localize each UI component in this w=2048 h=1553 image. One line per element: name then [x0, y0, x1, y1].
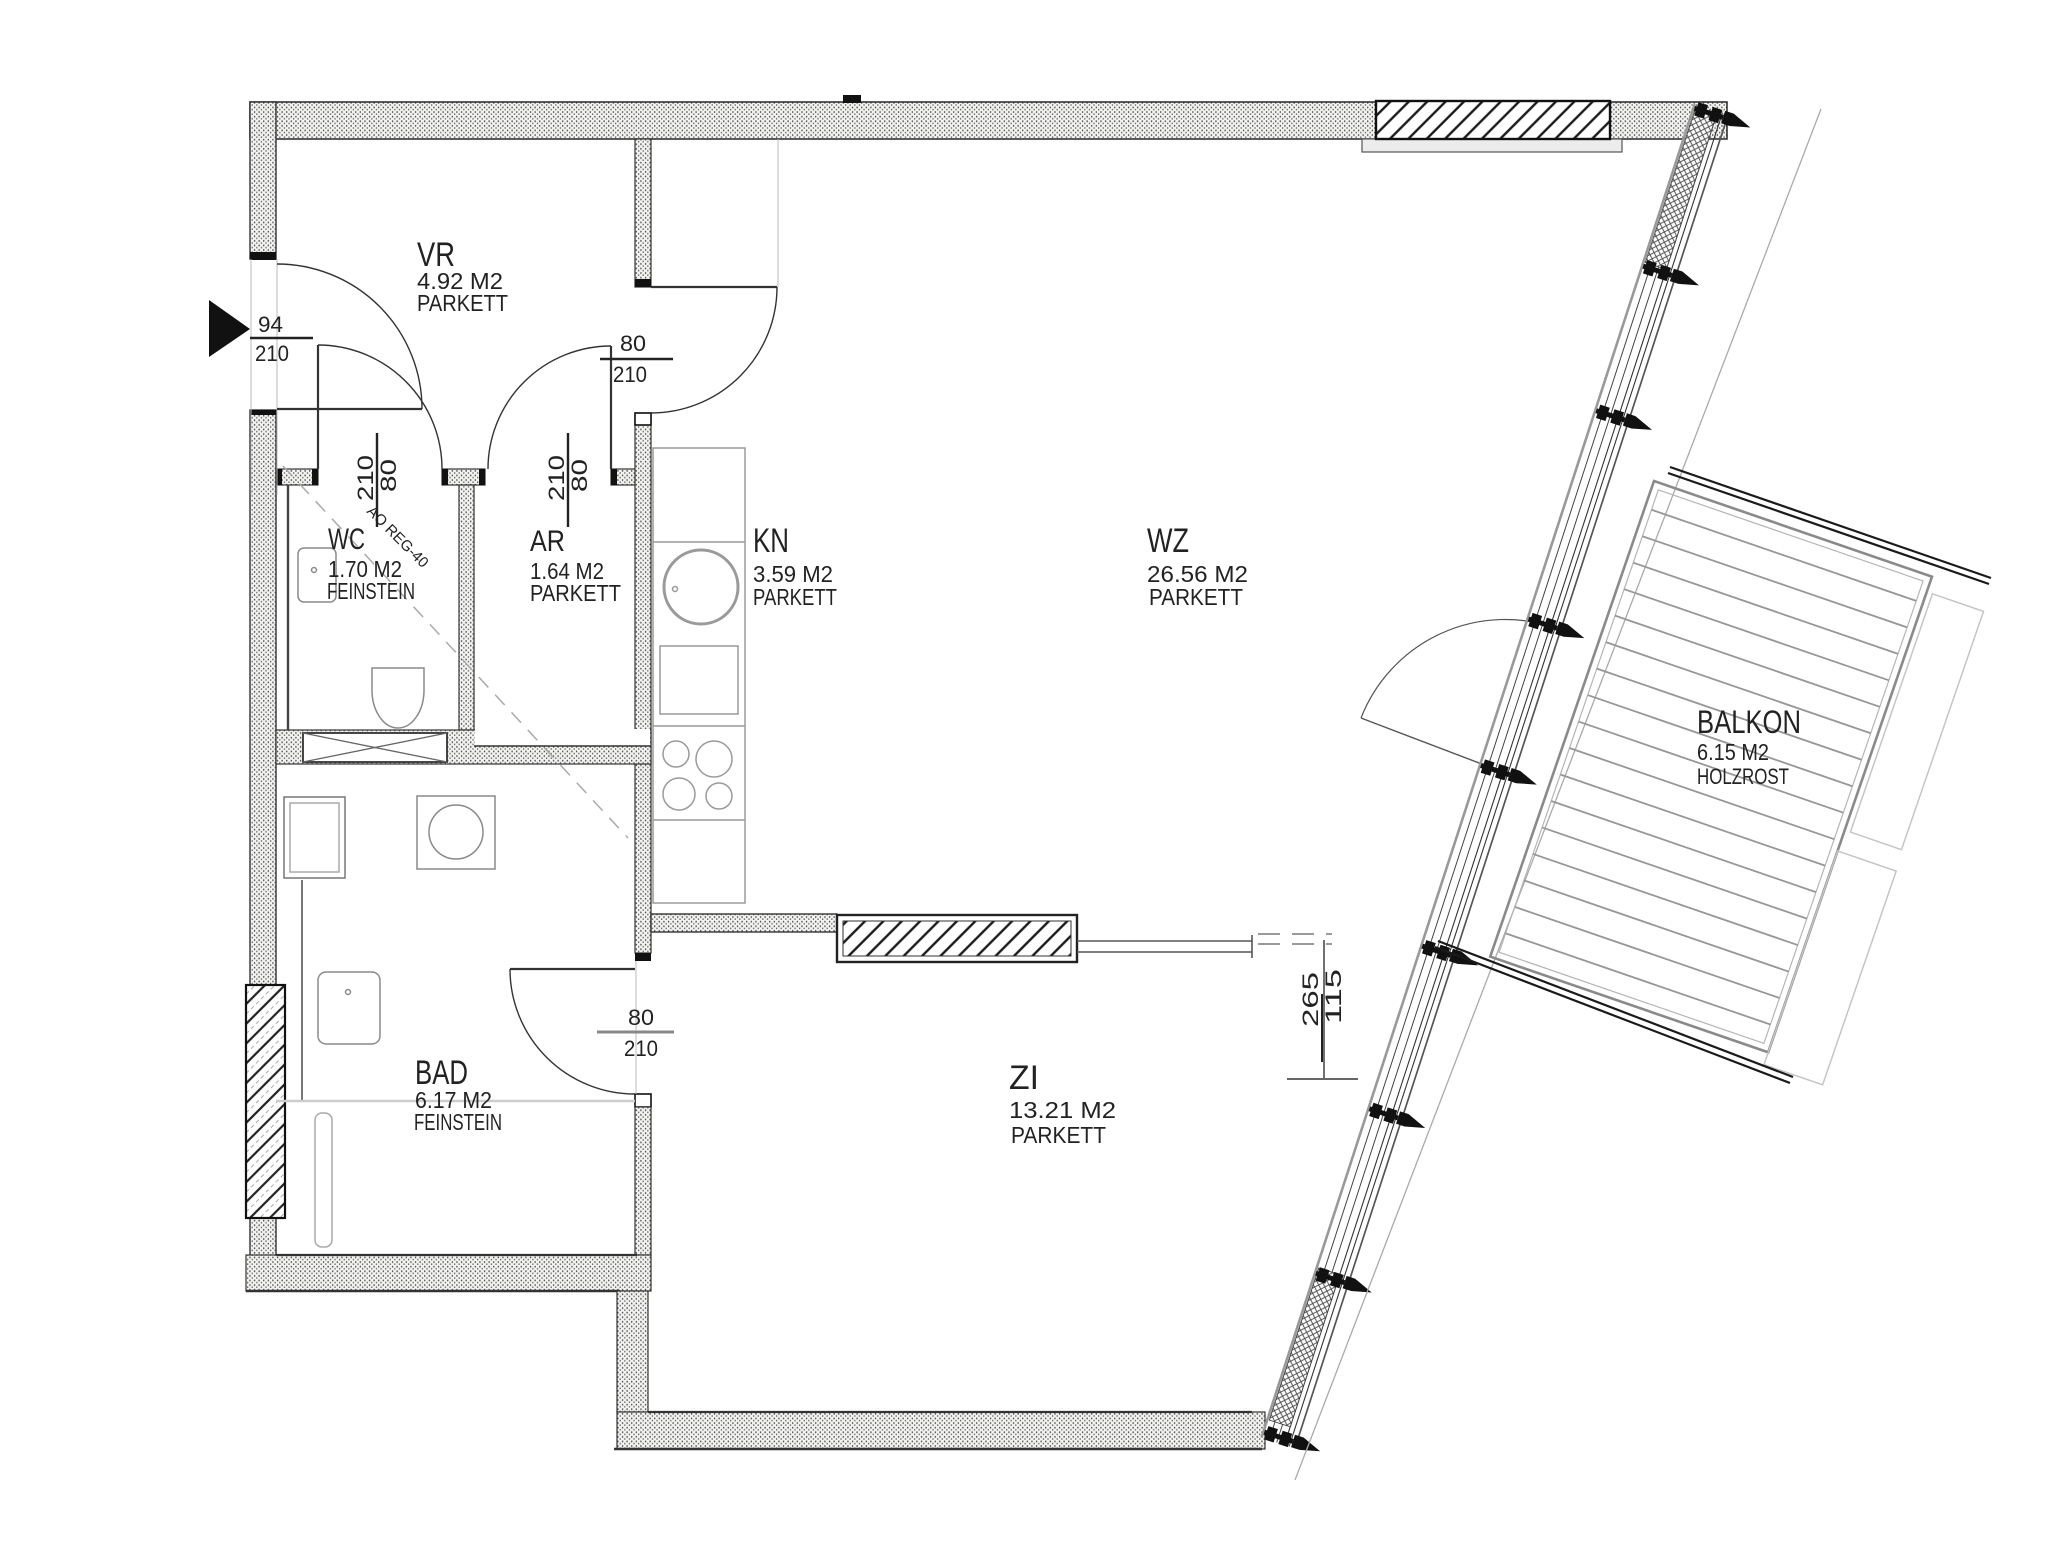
svg-text:FEINSTEIN: FEINSTEIN [414, 1109, 502, 1135]
svg-text:ZI: ZI [1009, 1059, 1039, 1097]
svg-text:WZ: WZ [1147, 522, 1189, 560]
svg-text:210: 210 [255, 341, 289, 366]
svg-text:94: 94 [258, 312, 283, 337]
svg-text:6.15 M2: 6.15 M2 [1697, 739, 1769, 765]
svg-text:KN: KN [753, 522, 789, 560]
svg-text:80: 80 [567, 459, 592, 492]
svg-text:265: 265 [1298, 972, 1323, 1027]
svg-text:FEINSTEIN: FEINSTEIN [327, 578, 415, 604]
svg-text:115: 115 [1321, 969, 1346, 1024]
svg-text:80: 80 [620, 331, 646, 356]
svg-text:210: 210 [613, 362, 647, 387]
svg-text:BALKON: BALKON [1697, 704, 1801, 740]
svg-text:210: 210 [624, 1036, 658, 1061]
svg-text:13.21 M2: 13.21 M2 [1009, 1097, 1116, 1123]
svg-text:AR: AR [530, 525, 565, 558]
svg-text:PARKETT: PARKETT [753, 584, 837, 610]
svg-text:PARKETT: PARKETT [530, 580, 621, 606]
svg-text:PARKETT: PARKETT [417, 290, 508, 316]
svg-text:HOLZROST: HOLZROST [1697, 764, 1789, 789]
svg-text:80: 80 [376, 459, 401, 492]
svg-text:210: 210 [544, 455, 569, 501]
svg-text:WC: WC [328, 523, 365, 556]
svg-text:PARKETT: PARKETT [1011, 1122, 1106, 1148]
svg-text:210: 210 [353, 455, 378, 501]
svg-text:80: 80 [628, 1005, 654, 1030]
svg-text:PARKETT: PARKETT [1149, 584, 1243, 610]
